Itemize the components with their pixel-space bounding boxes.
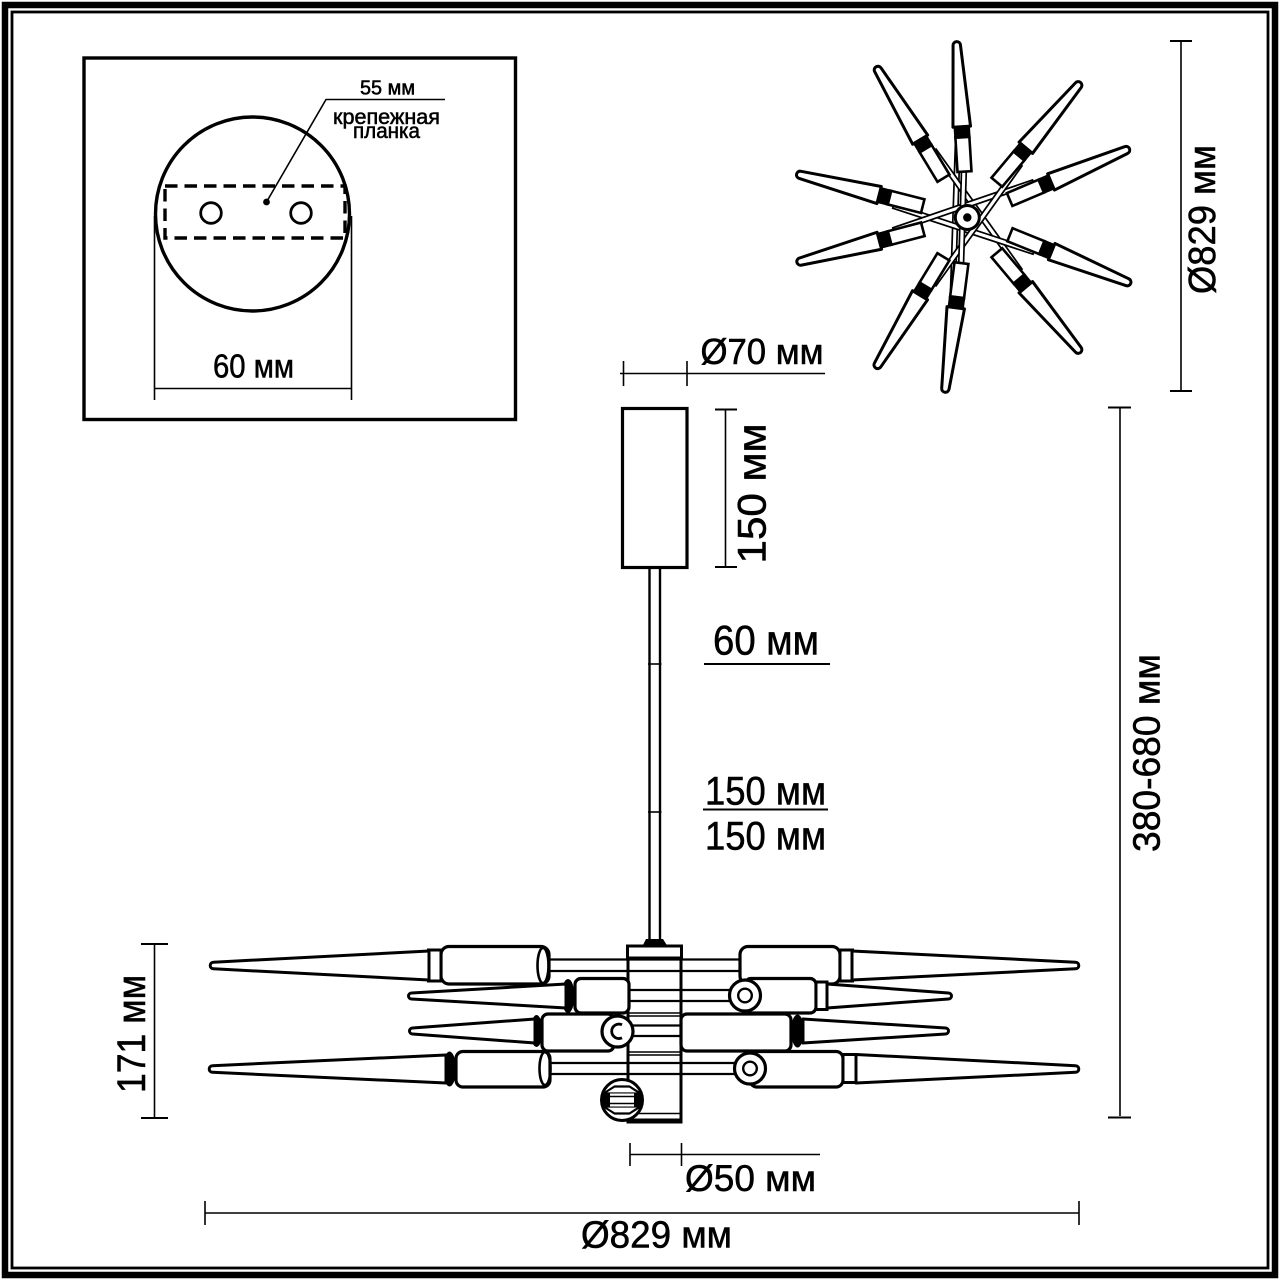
svg-text:планка: планка: [353, 120, 420, 143]
svg-text:150 мм: 150 мм: [705, 770, 826, 814]
svg-text:60 мм: 60 мм: [713, 617, 819, 664]
svg-text:Ø829 мм: Ø829 мм: [1182, 145, 1224, 294]
svg-text:380-680 мм: 380-680 мм: [1126, 654, 1168, 852]
svg-text:171 мм: 171 мм: [110, 975, 154, 1093]
svg-text:150 мм: 150 мм: [731, 424, 775, 564]
svg-text:150 мм: 150 мм: [705, 815, 826, 859]
svg-text:55 мм: 55 мм: [360, 78, 415, 100]
svg-text:Ø829 мм: Ø829 мм: [581, 1215, 732, 1257]
svg-text:Ø50 мм: Ø50 мм: [685, 1158, 816, 1199]
svg-text:Ø70 мм: Ø70 мм: [701, 331, 824, 372]
svg-text:60 мм: 60 мм: [213, 348, 294, 385]
